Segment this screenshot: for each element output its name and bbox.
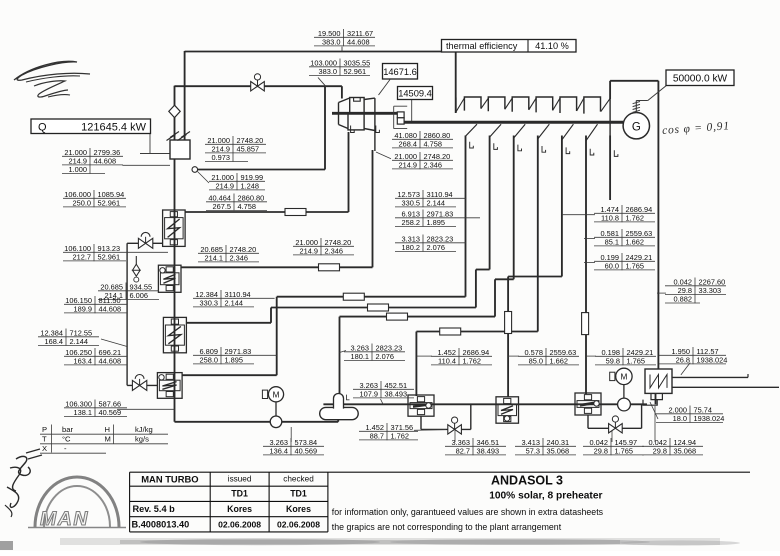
svg-text:168.4: 168.4 (45, 337, 64, 346)
svg-text:88.7: 88.7 (370, 432, 384, 441)
svg-text:X: X (42, 444, 47, 453)
svg-text:258.2: 258.2 (402, 218, 421, 227)
svg-text:1.762: 1.762 (463, 357, 482, 366)
svg-text:40.569: 40.569 (99, 408, 122, 417)
svg-text:110.8: 110.8 (601, 214, 619, 223)
svg-text:ANDASOL 3: ANDASOL 3 (491, 474, 563, 488)
svg-text:1.662: 1.662 (550, 357, 569, 366)
svg-text:B.4008013.40: B.4008013.40 (132, 519, 190, 529)
svg-text:Rev. 5.4 b: Rev. 5.4 b (133, 504, 176, 514)
svg-text:52.961: 52.961 (98, 253, 121, 262)
svg-text:50000.0 kW: 50000.0 kW (673, 74, 728, 85)
svg-text:136.4: 136.4 (270, 447, 289, 456)
svg-text:1.765: 1.765 (627, 357, 646, 366)
svg-text:214.9: 214.9 (399, 161, 418, 170)
svg-text:the grapics are not correspond: the grapics are not corresponding to the… (332, 522, 562, 532)
svg-text:1.895: 1.895 (225, 356, 244, 365)
svg-text:2.144: 2.144 (70, 337, 89, 346)
svg-text:14671.6: 14671.6 (383, 67, 417, 77)
svg-text:85.0: 85.0 (529, 357, 543, 366)
svg-text:1938.024: 1938.024 (694, 414, 725, 423)
svg-text:82.7: 82.7 (456, 447, 470, 456)
svg-text:T: T (42, 435, 47, 444)
svg-text:44.608: 44.608 (94, 157, 117, 166)
svg-text:35.068: 35.068 (674, 447, 697, 456)
svg-text:214.9: 214.9 (300, 247, 319, 256)
svg-text:checked: checked (283, 475, 314, 484)
svg-text:57.3: 57.3 (526, 447, 540, 456)
svg-text:02.06.2008: 02.06.2008 (218, 519, 261, 529)
svg-text:0.882: 0.882 (674, 295, 693, 304)
svg-text:MAN TURBO: MAN TURBO (141, 474, 198, 485)
svg-text:1.248: 1.248 (241, 182, 260, 191)
svg-text:180.2: 180.2 (402, 243, 421, 252)
svg-text:4.758: 4.758 (238, 202, 257, 211)
svg-text:1.765: 1.765 (626, 262, 645, 271)
svg-text:1.762: 1.762 (391, 432, 410, 441)
svg-text:138.1: 138.1 (74, 408, 93, 417)
svg-text:44.608: 44.608 (347, 38, 370, 47)
svg-text:110.4: 110.4 (438, 357, 456, 366)
svg-text:1.762: 1.762 (626, 214, 645, 223)
svg-text:2.346: 2.346 (325, 247, 344, 256)
svg-text:44.608: 44.608 (99, 305, 122, 314)
svg-text:TD1: TD1 (290, 489, 307, 499)
svg-text:for information only, garant: for information only, garantueed values … (332, 507, 604, 517)
svg-text:Kores: Kores (286, 504, 311, 514)
svg-text:1938.024: 1938.024 (697, 356, 728, 365)
svg-text:2.346: 2.346 (230, 254, 249, 263)
svg-text:6.006: 6.006 (130, 291, 149, 300)
svg-text:59.8: 59.8 (606, 357, 620, 366)
svg-text:G: G (632, 121, 641, 133)
svg-text:26.8: 26.8 (676, 356, 690, 365)
svg-text:MAN: MAN (40, 508, 89, 530)
svg-text:29.8: 29.8 (594, 447, 608, 456)
svg-text:1.765: 1.765 (615, 447, 634, 456)
svg-text:40.569: 40.569 (295, 447, 318, 456)
svg-text:383.0: 383.0 (322, 38, 341, 47)
svg-text:45.857: 45.857 (237, 145, 260, 154)
svg-text:38.493: 38.493 (477, 447, 500, 456)
svg-text:214.9: 214.9 (216, 182, 235, 191)
svg-text:189.9: 189.9 (74, 305, 93, 314)
svg-text:2.076: 2.076 (376, 352, 395, 361)
svg-text:14509.4: 14509.4 (398, 88, 432, 98)
svg-text:268.4: 268.4 (399, 140, 418, 149)
svg-text:1.895: 1.895 (427, 218, 446, 227)
svg-text:163.4: 163.4 (74, 357, 93, 366)
svg-text:267.5: 267.5 (213, 202, 232, 211)
svg-text:M: M (620, 373, 627, 382)
svg-text:4.758: 4.758 (424, 140, 443, 149)
svg-text:52.961: 52.961 (344, 67, 367, 76)
svg-text:H: H (105, 425, 110, 434)
svg-text:38.493: 38.493 (385, 390, 408, 399)
svg-text:330.5: 330.5 (402, 199, 421, 208)
svg-text:212.7: 212.7 (73, 253, 92, 262)
svg-text:2.076: 2.076 (427, 243, 446, 252)
svg-text:thermal efficiency: thermal efficiency (446, 41, 518, 51)
svg-text:P: P (42, 425, 47, 434)
svg-text:kJ/kg: kJ/kg (135, 425, 153, 434)
svg-text:2.346: 2.346 (424, 161, 443, 170)
svg-text:M: M (273, 391, 280, 400)
svg-text:°C: °C (62, 435, 71, 444)
svg-text:107.9: 107.9 (360, 390, 379, 399)
svg-text:44.608: 44.608 (99, 357, 122, 366)
svg-text:100% solar, 8 preheater: 100% solar, 8 preheater (489, 490, 602, 501)
svg-text:0.973: 0.973 (212, 153, 231, 162)
svg-text:33.303: 33.303 (699, 286, 722, 295)
svg-text:02.06.2008: 02.06.2008 (277, 519, 320, 529)
svg-text:Q: Q (38, 121, 47, 133)
svg-text:330.3: 330.3 (200, 299, 219, 308)
svg-text:bar: bar (62, 425, 73, 434)
svg-text:TD1: TD1 (231, 489, 248, 499)
svg-text:60.0: 60.0 (605, 262, 619, 271)
svg-text:18.0: 18.0 (673, 414, 687, 423)
svg-text:2.144: 2.144 (427, 199, 446, 208)
svg-text:1.662: 1.662 (626, 238, 645, 247)
svg-text:214.1: 214.1 (205, 254, 224, 263)
svg-text:2.144: 2.144 (225, 299, 244, 308)
svg-text:issued: issued (228, 475, 252, 484)
svg-text:383.0: 383.0 (319, 67, 338, 76)
svg-text:M: M (105, 435, 111, 444)
svg-text:258.0: 258.0 (200, 356, 219, 365)
svg-text:41.10 %: 41.10 % (535, 41, 569, 51)
svg-text:1.000: 1.000 (69, 165, 88, 174)
svg-text:35.068: 35.068 (547, 447, 570, 456)
svg-text:29.8: 29.8 (653, 447, 667, 456)
svg-text:180.1: 180.1 (351, 352, 370, 361)
svg-text:kg/s: kg/s (135, 435, 149, 444)
svg-text:250.0: 250.0 (73, 199, 92, 208)
svg-text:Kores: Kores (227, 504, 252, 514)
svg-text:121645.4 kW: 121645.4 kW (81, 121, 146, 133)
svg-text:85.1: 85.1 (605, 238, 619, 247)
svg-text:52.961: 52.961 (98, 199, 121, 208)
